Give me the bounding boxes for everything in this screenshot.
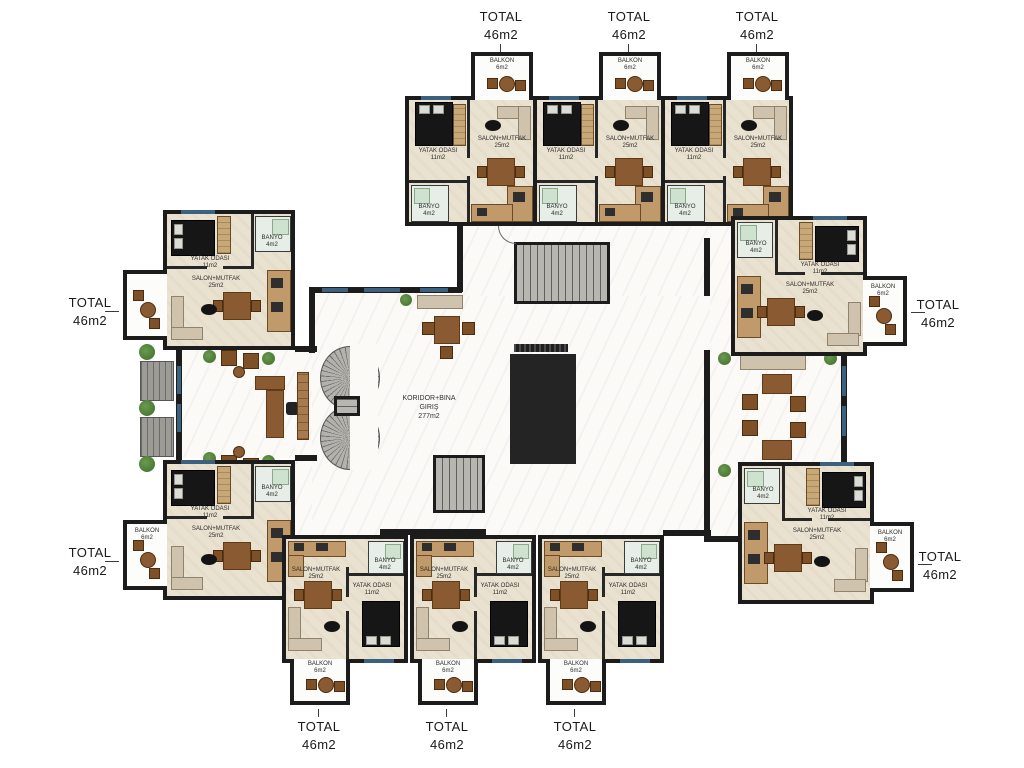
chair xyxy=(550,589,560,601)
inner-wall xyxy=(775,220,778,272)
wall xyxy=(663,530,711,536)
salon-label: SALON+MUTFAK25m2 xyxy=(286,567,346,581)
window xyxy=(620,659,650,663)
inner-wall xyxy=(723,100,726,158)
inner-wall xyxy=(782,466,785,518)
shelf xyxy=(297,372,309,440)
staircase-bottom xyxy=(433,455,485,513)
chair xyxy=(771,166,781,178)
apartment-unit-east-upper: BALKON6m2 BANYO4m2 YATAK ODASI11m2 SALON… xyxy=(731,216,867,356)
pillow xyxy=(854,476,863,487)
stove xyxy=(444,543,456,551)
shower xyxy=(272,219,289,235)
pillow xyxy=(433,105,444,114)
bed xyxy=(362,601,400,647)
coffee-table xyxy=(762,440,792,460)
window xyxy=(181,210,215,214)
balcony: BALKON6m2 xyxy=(599,52,661,100)
balcony-table xyxy=(755,76,771,92)
total-area-label: TOTAL46m2 xyxy=(900,548,980,584)
chair xyxy=(460,589,470,601)
shower xyxy=(385,544,401,559)
balcony-table xyxy=(883,554,899,570)
sink xyxy=(422,543,432,551)
salon-label: SALON+MUTFAK25m2 xyxy=(782,528,852,542)
total-area-label: TOTAL46m2 xyxy=(407,718,487,754)
sofa xyxy=(171,577,203,590)
pergola-bench xyxy=(140,417,174,457)
sink xyxy=(748,554,760,564)
pillow xyxy=(380,636,391,645)
salon-label: SALON+MUTFAK25m2 xyxy=(542,567,602,581)
balcony-label: BALKON6m2 xyxy=(870,530,910,544)
bathroom-label: BANYO4m2 xyxy=(747,487,779,501)
inner-wall xyxy=(602,611,605,659)
leader-line xyxy=(105,561,119,562)
pillow xyxy=(419,105,430,114)
balcony-table xyxy=(499,76,515,92)
balcony-chair xyxy=(487,78,498,89)
window xyxy=(177,366,181,394)
elevator-shaft xyxy=(510,354,576,464)
sofa xyxy=(416,638,450,651)
wardrobe xyxy=(709,104,722,146)
bed xyxy=(618,601,656,647)
wall xyxy=(295,455,317,461)
pillow xyxy=(174,474,183,485)
balcony-chair xyxy=(149,318,160,329)
sofa xyxy=(827,333,859,346)
bathroom-label: BANYO4m2 xyxy=(540,204,574,218)
bathroom: BANYO4m2 xyxy=(368,541,404,574)
sink xyxy=(733,208,743,216)
chair xyxy=(294,589,304,601)
window xyxy=(364,659,394,663)
coffee-table xyxy=(324,621,340,632)
window xyxy=(842,406,846,436)
bathroom: BANYO4m2 xyxy=(411,185,449,222)
chair xyxy=(515,166,525,178)
apartment-unit-west-upper: BALKON6m2 YATAK ODASI11m2 BANYO4m2 SALON… xyxy=(163,210,295,350)
total-area-label: TOTAL46m2 xyxy=(461,8,541,44)
sofa xyxy=(544,638,578,651)
dining-table xyxy=(560,581,588,609)
coffee-table xyxy=(452,621,468,632)
leader-line xyxy=(500,44,501,52)
reception-desk xyxy=(266,390,284,438)
coffee-table xyxy=(201,304,217,315)
balcony-label: BALKON6m2 xyxy=(863,284,903,298)
coffee-table xyxy=(814,556,830,567)
window xyxy=(842,366,846,396)
coffee-table xyxy=(201,554,217,565)
plant xyxy=(400,294,412,306)
chair xyxy=(643,166,653,178)
sofa xyxy=(171,296,184,330)
plant xyxy=(203,350,216,363)
balcony-table xyxy=(876,308,892,324)
coffee-table xyxy=(485,120,501,131)
coffee-table xyxy=(741,120,757,131)
balcony: BALKON6m2 xyxy=(418,659,478,705)
dining-table xyxy=(743,158,771,186)
wardrobe xyxy=(581,104,594,146)
salon-label: SALON+MUTFAK25m2 xyxy=(599,136,661,150)
stove xyxy=(513,192,525,202)
balcony-chair xyxy=(562,679,573,690)
wall xyxy=(704,350,710,542)
pillow xyxy=(636,636,647,645)
chair xyxy=(802,552,812,564)
coffee-table xyxy=(613,120,629,131)
dining-table xyxy=(304,581,332,609)
reception-desk xyxy=(255,376,285,390)
dining-table xyxy=(223,542,251,570)
apartment-unit-top-2: BALKON6m2 YATAK ODASI11m2 BANYO4m2 SALON… xyxy=(533,96,665,226)
pillow xyxy=(366,636,377,645)
leader-line xyxy=(318,709,319,717)
chair xyxy=(605,166,615,178)
spiral-stair-landing xyxy=(334,396,360,416)
salon-label: SALON+MUTFAK25m2 xyxy=(414,567,474,581)
sink xyxy=(477,208,487,216)
total-area-label: TOTAL46m2 xyxy=(898,296,978,332)
chair xyxy=(733,166,743,178)
bathroom-label: BANYO4m2 xyxy=(668,204,702,218)
balcony-table xyxy=(627,76,643,92)
balcony-chair xyxy=(743,78,754,89)
bedroom-label: YATAK ODASI11m2 xyxy=(665,148,723,162)
window xyxy=(813,216,847,220)
chair xyxy=(422,589,432,601)
balcony-chair xyxy=(885,324,896,335)
armchair xyxy=(790,422,806,438)
bedroom-label: YATAK ODASI11m2 xyxy=(409,148,467,162)
sofa xyxy=(834,579,866,592)
lobby-desk xyxy=(434,316,460,344)
lobby-sofa xyxy=(417,295,463,309)
inner-wall xyxy=(251,464,254,516)
wardrobe xyxy=(217,466,231,504)
stove xyxy=(748,530,760,540)
shower xyxy=(513,544,529,559)
shower xyxy=(747,471,764,487)
plant xyxy=(718,352,731,365)
apartment-unit-top-3: BALKON6m2 YATAK ODASI11m2 BANYO4m2 SALON… xyxy=(661,96,793,226)
chair xyxy=(251,300,261,312)
balcony-table xyxy=(318,677,334,693)
balcony: BALKON6m2 xyxy=(727,52,789,100)
sofa xyxy=(288,607,301,641)
armchair xyxy=(742,394,758,410)
sofa xyxy=(171,546,184,580)
corridor-label: KORIDOR+BINA GIRIŞ 277m2 xyxy=(386,394,472,421)
inner-wall xyxy=(665,180,723,183)
shower xyxy=(272,469,289,485)
shower xyxy=(641,544,657,559)
bedroom-label: YATAK ODASI11m2 xyxy=(175,256,245,270)
window xyxy=(820,462,854,466)
apartment-unit-east-lower: BALKON6m2 BANYO4m2 YATAK ODASI11m2 SALON… xyxy=(738,462,874,604)
bathroom: BANYO4m2 xyxy=(744,468,780,504)
sink xyxy=(741,308,753,318)
planter xyxy=(139,400,155,416)
sink xyxy=(550,543,560,551)
balcony-chair xyxy=(133,290,144,301)
staircase-top xyxy=(514,242,610,304)
bathroom-label: BANYO4m2 xyxy=(625,558,657,572)
pillow xyxy=(689,105,700,114)
window xyxy=(364,288,400,292)
sofa xyxy=(288,638,322,651)
planter xyxy=(139,456,155,472)
bed xyxy=(822,472,866,508)
wardrobe xyxy=(806,468,820,506)
coffee-table xyxy=(580,621,596,632)
pillow xyxy=(854,490,863,501)
pillow xyxy=(174,224,183,235)
armchair xyxy=(742,420,758,436)
sofa xyxy=(774,106,787,140)
window xyxy=(421,96,451,100)
bedroom-label: YATAK ODASI11m2 xyxy=(785,262,855,276)
salon-label: SALON+MUTFAK25m2 xyxy=(181,276,251,290)
leader-line xyxy=(756,44,757,52)
chair xyxy=(795,306,805,318)
balcony-label: BALKON6m2 xyxy=(294,661,346,675)
sofa xyxy=(855,548,868,582)
pillow xyxy=(174,488,183,499)
dining-table xyxy=(487,158,515,186)
sofa xyxy=(544,607,557,641)
bed xyxy=(490,601,528,647)
chair xyxy=(251,550,261,562)
balcony-label: BALKON6m2 xyxy=(422,661,474,675)
inner-wall xyxy=(467,100,470,158)
stove xyxy=(641,192,653,202)
stove xyxy=(769,192,781,202)
bed xyxy=(543,102,581,146)
balcony-chair xyxy=(334,681,345,692)
salon-label: SALON+MUTFAK25m2 xyxy=(181,526,251,540)
window xyxy=(549,96,579,100)
window xyxy=(492,659,522,663)
balcony-chair xyxy=(434,679,445,690)
pillow xyxy=(847,230,856,241)
balcony-label: BALKON6m2 xyxy=(731,58,785,72)
wall xyxy=(704,238,710,296)
inner-wall xyxy=(467,176,470,222)
stove xyxy=(271,278,283,288)
armchair xyxy=(440,346,453,359)
armchair xyxy=(422,322,435,335)
chair xyxy=(588,589,598,601)
wardrobe xyxy=(799,222,813,260)
balcony-chair xyxy=(515,80,526,91)
balcony-chair xyxy=(771,80,782,91)
bathroom: BANYO4m2 xyxy=(539,185,577,222)
chair xyxy=(764,552,774,564)
sink xyxy=(271,302,283,312)
bedroom-label: YATAK ODASI11m2 xyxy=(470,583,530,597)
chair xyxy=(332,589,342,601)
coffee-table xyxy=(762,374,792,394)
bedroom-label: YATAK ODASI11m2 xyxy=(792,508,862,522)
balcony-table xyxy=(574,677,590,693)
dining-table xyxy=(767,298,795,326)
apartment-unit-west-lower: BALKON6m2 YATAK ODASI11m2 BANYO4m2 SALON… xyxy=(163,460,295,600)
leader-line xyxy=(918,564,932,565)
inner-wall xyxy=(537,180,595,183)
window xyxy=(177,404,181,432)
bedroom-label: YATAK ODASI11m2 xyxy=(598,583,658,597)
balcony-label: BALKON6m2 xyxy=(603,58,657,72)
bedroom-label: YATAK ODASI11m2 xyxy=(342,583,402,597)
balcony-chair xyxy=(590,681,601,692)
bathroom: BANYO4m2 xyxy=(255,216,291,252)
total-area-label: TOTAL46m2 xyxy=(535,718,615,754)
floor-plan: KORIDOR+BINA GIRIŞ 277m2 BALKON6m2 YATAK… xyxy=(0,0,1024,768)
armchair xyxy=(243,353,259,369)
total-area-label: TOTAL46m2 xyxy=(717,8,797,44)
salon-label: SALON+MUTFAK25m2 xyxy=(775,282,845,296)
wall xyxy=(309,287,315,353)
bathroom: BANYO4m2 xyxy=(496,541,532,574)
total-area-label: TOTAL46m2 xyxy=(589,8,669,44)
chair xyxy=(757,306,767,318)
bathroom-label: BANYO4m2 xyxy=(369,558,401,572)
total-area-label: TOTAL46m2 xyxy=(50,544,130,580)
bedroom-label: YATAK ODASI11m2 xyxy=(537,148,595,162)
leader-line xyxy=(628,44,629,52)
bed xyxy=(171,220,215,256)
sofa xyxy=(848,302,861,336)
wardrobe xyxy=(217,216,231,254)
bathroom-label: BANYO4m2 xyxy=(740,241,772,255)
shower xyxy=(740,225,757,241)
inner-wall xyxy=(251,214,254,266)
armchair xyxy=(462,322,475,335)
inner-wall xyxy=(723,176,726,222)
window xyxy=(181,460,215,464)
armchair xyxy=(790,396,806,412)
leader-line xyxy=(105,311,119,312)
apartment-unit-bottom-3: BALKON6m2 SALON+MUTFAK25m2 BANYO4m2 YATA… xyxy=(538,535,664,663)
stove xyxy=(572,543,584,551)
plant xyxy=(718,464,731,477)
planter xyxy=(139,344,155,360)
bathroom: BANYO4m2 xyxy=(667,185,705,222)
shower xyxy=(670,188,686,204)
bed xyxy=(815,226,859,262)
bed xyxy=(671,102,709,146)
balcony-chair xyxy=(306,679,317,690)
pergola-bench xyxy=(140,361,174,401)
plant xyxy=(262,352,275,365)
pillow xyxy=(561,105,572,114)
window xyxy=(420,288,448,292)
balcony-table xyxy=(446,677,462,693)
coffee-table xyxy=(807,310,823,321)
bed xyxy=(171,470,215,506)
pillow xyxy=(847,244,856,255)
bathroom: BANYO4m2 xyxy=(255,466,291,502)
bathroom-label: BANYO4m2 xyxy=(497,558,529,572)
dining-table xyxy=(615,158,643,186)
balcony-label: BALKON6m2 xyxy=(550,661,602,675)
balcony-label: BALKON6m2 xyxy=(127,528,167,542)
chair xyxy=(477,166,487,178)
bedroom-label: YATAK ODASI11m2 xyxy=(175,506,245,520)
stove xyxy=(741,284,753,294)
sink xyxy=(605,208,615,216)
window xyxy=(322,288,348,292)
leader-line xyxy=(446,709,447,717)
wall xyxy=(457,226,463,292)
stove xyxy=(316,543,328,551)
pillow xyxy=(547,105,558,114)
bathroom-label: BANYO4m2 xyxy=(256,235,288,249)
total-area-label: TOTAL46m2 xyxy=(279,718,359,754)
salon-label: SALON+MUTFAK25m2 xyxy=(727,136,789,150)
bathroom: BANYO4m2 xyxy=(737,222,773,258)
inner-wall xyxy=(595,100,598,158)
leader-line xyxy=(574,709,575,717)
pillow xyxy=(174,238,183,249)
apartment-unit-bottom-2: BALKON6m2 SALON+MUTFAK25m2 BANYO4m2 YATA… xyxy=(410,535,536,663)
inner-wall xyxy=(409,180,467,183)
sofa xyxy=(416,607,429,641)
leader-line xyxy=(911,312,925,313)
inner-wall xyxy=(346,611,349,659)
armchair xyxy=(221,350,237,366)
entrance-mat xyxy=(514,344,568,352)
pillow xyxy=(494,636,505,645)
balcony-chair xyxy=(643,80,654,91)
wall xyxy=(176,346,182,460)
sofa xyxy=(646,106,659,140)
inner-wall xyxy=(595,176,598,222)
inner-wall xyxy=(474,611,477,659)
pillow xyxy=(675,105,686,114)
side-table xyxy=(233,446,245,458)
balcony: BALKON6m2 xyxy=(290,659,350,705)
pillow xyxy=(622,636,633,645)
sofa xyxy=(171,327,203,340)
apartment-unit-bottom-1: BALKON6m2 SALON+MUTFAK25m2 BANYO4m2 YATA… xyxy=(282,535,408,663)
apartment-unit-top-1: BALKON6m2 YATAK ODASI11m2 BANYO4m2 SALON… xyxy=(405,96,537,226)
bed xyxy=(415,102,453,146)
sink xyxy=(294,543,304,551)
shower xyxy=(542,188,558,204)
pillow xyxy=(508,636,519,645)
balcony-chair xyxy=(615,78,626,89)
dining-table xyxy=(774,544,802,572)
dining-table xyxy=(432,581,460,609)
sofa xyxy=(518,106,531,140)
bathroom-label: BANYO4m2 xyxy=(412,204,446,218)
shower xyxy=(414,188,430,204)
wardrobe xyxy=(453,104,466,146)
balcony: BALKON6m2 xyxy=(471,52,533,100)
bathroom: BANYO4m2 xyxy=(624,541,660,574)
balcony-chair xyxy=(149,568,160,579)
side-table xyxy=(233,366,245,378)
bathroom-label: BANYO4m2 xyxy=(256,485,288,499)
total-area-label: TOTAL46m2 xyxy=(50,294,130,330)
balcony-label: BALKON6m2 xyxy=(475,58,529,72)
balcony-table xyxy=(140,302,156,318)
